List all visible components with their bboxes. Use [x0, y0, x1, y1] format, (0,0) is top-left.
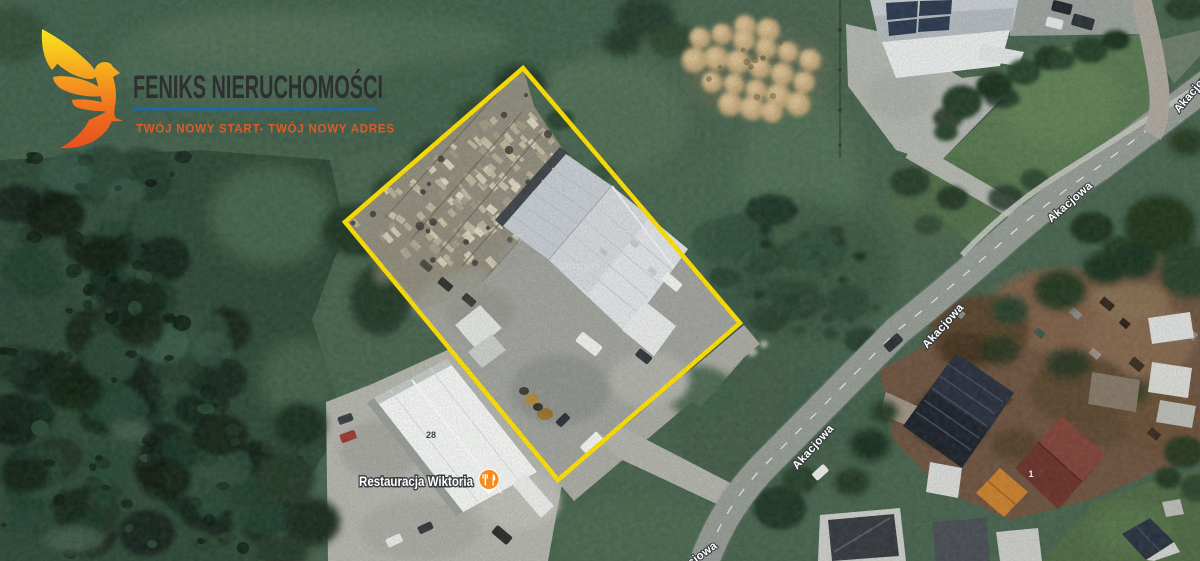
svg-text:Restauracja Wiktoria: Restauracja Wiktoria	[359, 474, 473, 489]
svg-text:1: 1	[1028, 469, 1033, 479]
svg-text:28: 28	[426, 430, 436, 440]
svg-text:TWÓJ NOWY START- TWÓJ NOWY ADR: TWÓJ NOWY START- TWÓJ NOWY ADRES	[136, 123, 394, 136]
svg-text:FENIKS NIERUCHOMOŚCI: FENIKS NIERUCHOMOŚCI	[133, 69, 383, 105]
